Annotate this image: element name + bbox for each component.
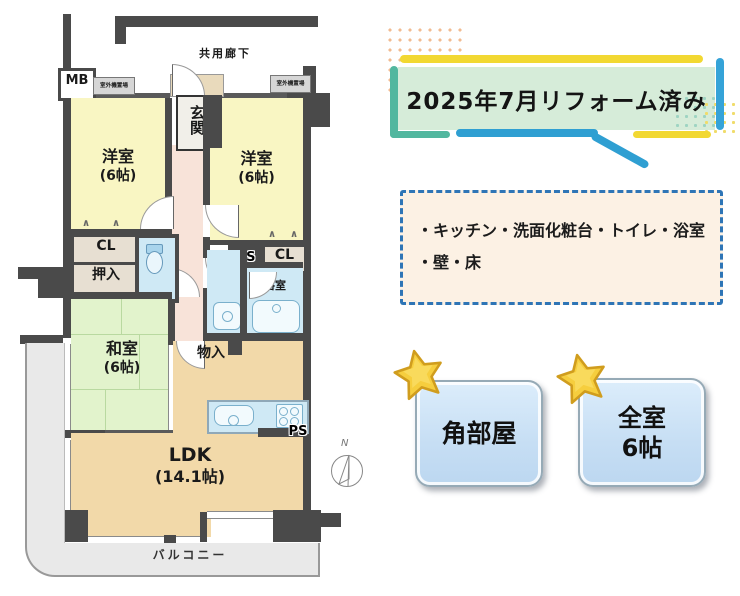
- wall-left-jut: [18, 267, 63, 279]
- compass: N: [327, 440, 367, 492]
- banner-line-blue-right: [716, 58, 724, 130]
- renovation-line2: ・壁・床: [417, 249, 712, 273]
- badge-all-rooms-line1: 全室: [618, 404, 666, 432]
- banner-line-teal-left: [390, 66, 398, 138]
- star-icon: [551, 347, 613, 409]
- banner-line-teal-bottom: [390, 131, 450, 138]
- japanese-room-label: 和室 (6帖): [71, 340, 173, 377]
- meter-box: MB: [58, 68, 96, 101]
- tatami-line: [71, 334, 173, 335]
- banner-line-yellow-top: [400, 55, 703, 63]
- burner-icon: [290, 407, 299, 416]
- washbasin-bowl-icon: [222, 311, 233, 322]
- star-icon: [388, 343, 450, 405]
- wall-tatami-top: [71, 292, 172, 299]
- compass-north-label: N: [341, 438, 348, 449]
- outdoor-unit-left-label: 室外機置場: [98, 83, 130, 89]
- wall-bottom-step: [200, 512, 207, 542]
- balcony-label: バルコニー: [120, 549, 260, 562]
- wall-tatami-right-upper: [168, 299, 175, 345]
- badge-all-rooms-line2: 6帖: [622, 434, 663, 462]
- western-room-left-size: (6帖): [100, 168, 137, 184]
- western-room-left-label: 洋室 (6帖): [71, 148, 165, 185]
- western-room-right-label: 洋室 (6帖): [210, 150, 303, 187]
- ps-lower-label: PS: [283, 424, 313, 439]
- toilet-icon: [146, 251, 163, 274]
- corner-block-bottom-right: [273, 510, 321, 542]
- tatami-line: [105, 389, 106, 433]
- outdoor-unit-right: 室外機置場: [270, 75, 311, 93]
- closet-mark-1: ∧: [82, 218, 90, 229]
- badge-corner-room-label: 角部屋: [441, 418, 516, 449]
- window-ldk-bottom-right: [207, 511, 273, 519]
- tatami-line: [71, 389, 173, 390]
- wall-hall-left-upper: [165, 98, 172, 198]
- closet-left-label: CL: [74, 239, 138, 255]
- renovation-box: ・キッチン・洗面化粧台・トイレ・浴室 ・壁・床: [400, 190, 723, 305]
- closet-mark-2: ∧: [112, 218, 120, 229]
- outdoor-unit-left: 室外機置場: [93, 77, 135, 95]
- oshiire-label: 押入: [74, 268, 138, 284]
- ldk-label: LDK (14.1帖): [120, 445, 260, 488]
- entrance-door-arc: [172, 64, 205, 96]
- property-flyer: 共用廊下 MB 室外機置場 室外機置場 玄関 洋室 (6帖) 洋室 (6帖): [0, 0, 740, 596]
- japanese-room-size: (6帖): [104, 360, 141, 376]
- banner-line-yellow-bottom: [633, 131, 711, 138]
- ldk-size: (14.1帖): [155, 467, 225, 486]
- western-room-left-name: 洋室: [102, 147, 134, 166]
- closet-mark-4: ∧: [290, 229, 298, 240]
- renovation-line1: ・キッチン・洗面化粧台・トイレ・浴室: [417, 217, 712, 241]
- badge-all-rooms-label: 全室 6帖: [618, 403, 666, 463]
- kitchen-sink-icon: [214, 405, 254, 426]
- wall-corridor: [115, 16, 318, 27]
- sink-drain-icon: [228, 415, 239, 426]
- western-room-right-size: (6帖): [238, 170, 275, 186]
- wall-left-jut-block: [38, 279, 63, 298]
- wall-bath-bottom: [203, 333, 305, 341]
- tatami-line: [121, 299, 122, 334]
- corridor-label: 共用廊下: [160, 48, 290, 60]
- outdoor-unit-right-label: 室外機置場: [275, 81, 306, 87]
- banner-line-blue-bottom: [456, 129, 598, 137]
- burner-icon: [279, 407, 288, 416]
- western-room-right-name: 洋室: [240, 149, 272, 168]
- wall-entrance-right: [203, 95, 222, 148]
- wall-hall-right-upper: [203, 148, 210, 205]
- wall-left-tatami: [63, 298, 71, 338]
- wall-top-left-stub: [63, 14, 71, 72]
- wall-corridor-end: [115, 27, 126, 44]
- wall-bottom-right-stub: [318, 513, 341, 527]
- wall-right: [303, 127, 311, 517]
- balcony-side: [25, 343, 65, 545]
- meter-box-label: MB: [61, 74, 93, 89]
- bottom-window-pier: [164, 535, 176, 543]
- japanese-room-name: 和室: [106, 339, 138, 358]
- washbasin-icon: [213, 302, 241, 330]
- storage-label: 物入: [186, 346, 236, 362]
- ldk-name: LDK: [169, 444, 212, 466]
- bath-faucet-icon: [272, 304, 281, 313]
- banner-title: 2025年7月リフォーム済み: [398, 82, 715, 116]
- bathtub-icon: [252, 300, 300, 333]
- wall-left-upper: [63, 70, 71, 298]
- closet-mark-3: ∧: [268, 229, 276, 240]
- entrance-label: 玄関: [178, 97, 205, 143]
